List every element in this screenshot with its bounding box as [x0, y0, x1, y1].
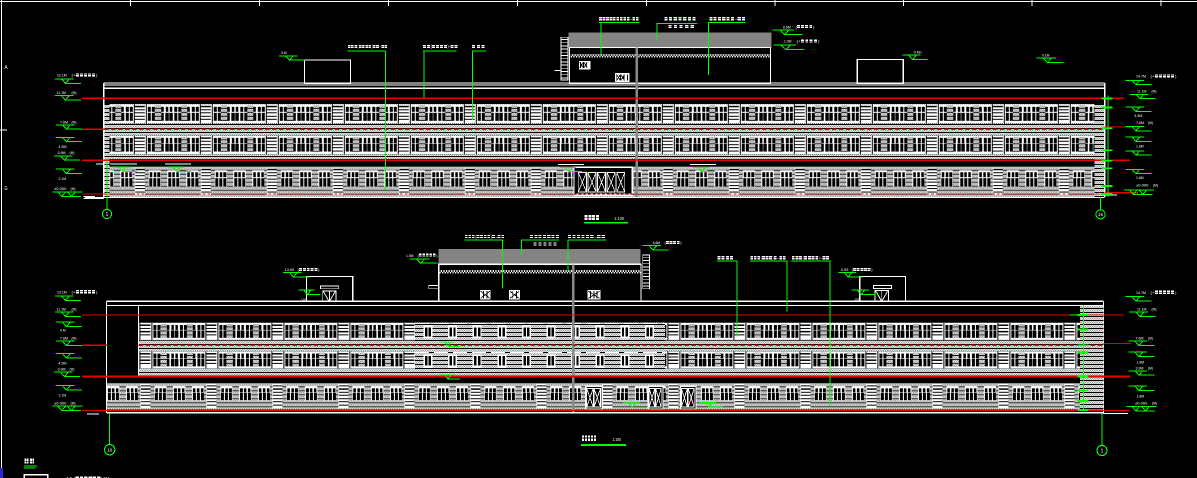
svg-text:3.95: 3.95	[841, 267, 849, 272]
svg-text:±0.000: ±0.000	[54, 400, 67, 405]
svg-text:1.5M: 1.5M	[406, 253, 413, 258]
svg-text:6.6M: 6.6M	[653, 240, 661, 245]
svg-text:(+: (+	[1151, 74, 1156, 79]
svg-text:(M): (M)	[1148, 120, 1154, 125]
svg-text:4.5M: 4.5M	[59, 360, 67, 365]
svg-text:(+: (+	[72, 289, 77, 294]
svg-text:(M): (M)	[1152, 307, 1158, 312]
svg-text:U.M: U.M	[855, 296, 861, 301]
svg-text:7.6M: 7.6M	[1136, 120, 1144, 125]
svg-text:13.95: 13.95	[285, 267, 295, 272]
svg-text:±0.000: ±0.000	[1136, 183, 1149, 188]
svg-text:3.9M: 3.9M	[1136, 365, 1144, 370]
svg-text:(M): (M)	[1148, 335, 1154, 340]
svg-text:14.7M: 14.7M	[1136, 74, 1146, 79]
svg-text:(M): (M)	[72, 119, 78, 124]
svg-text:11.1M: 11.1M	[1137, 89, 1146, 94]
svg-text:(M): (M)	[72, 306, 78, 311]
svg-text:4.M: 4.M	[60, 327, 66, 332]
svg-text:±0.000: ±0.000	[54, 186, 67, 191]
svg-text:(M): (M)	[72, 90, 78, 95]
svg-text:(M): (M)	[1153, 183, 1159, 188]
svg-text:2.1M: 2.1M	[59, 176, 67, 181]
svg-text:(+: (+	[1151, 290, 1156, 295]
svg-text:9.1M: 9.1M	[1042, 52, 1049, 57]
svg-text:A: A	[5, 65, 8, 71]
svg-text:1: 1	[106, 212, 109, 218]
svg-text:9.Mn: 9.Mn	[914, 49, 922, 54]
svg-text:12.1M: 12.1M	[57, 73, 67, 78]
svg-text:13.1M: 13.1M	[57, 289, 67, 294]
svg-text:16: 16	[1098, 212, 1103, 217]
svg-text:(M): (M)	[72, 336, 78, 341]
svg-text:(M): (M)	[71, 400, 77, 405]
svg-text:1: 1	[1101, 448, 1104, 454]
svg-text:9.M: 9.M	[281, 50, 287, 55]
svg-text:(M): (M)	[71, 186, 77, 191]
svg-text:2.1M: 2.1M	[59, 392, 67, 397]
svg-text:7.6M: 7.6M	[1136, 335, 1144, 340]
svg-text:7.6M: 7.6M	[60, 119, 68, 124]
svg-text:(M): (M)	[70, 366, 76, 371]
svg-text:7.6M: 7.6M	[60, 336, 68, 341]
svg-text:16: 16	[107, 447, 113, 452]
svg-text:1.0M: 1.0M	[784, 39, 791, 44]
svg-text:3.9M: 3.9M	[58, 150, 66, 155]
svg-text:(M): (M)	[1152, 401, 1158, 406]
svg-text:3.9M: 3.9M	[58, 366, 66, 371]
svg-text:G: G	[5, 186, 8, 192]
svg-text:14.7M: 14.7M	[1136, 290, 1146, 295]
svg-text:11.1M: 11.1M	[57, 306, 66, 311]
svg-text:U.M: U.M	[302, 296, 308, 301]
svg-text:1:100: 1:100	[615, 216, 625, 221]
svg-text:11.1M: 11.1M	[57, 90, 66, 95]
svg-text:)—: )—	[819, 255, 823, 260]
svg-text:1.8M: 1.8M	[1137, 393, 1145, 398]
svg-text:6.6M: 6.6M	[783, 24, 791, 29]
svg-text:1.8M: 1.8M	[1136, 175, 1144, 180]
svg-text:(M): (M)	[1152, 89, 1158, 94]
svg-text:1.8M: 1.8M	[1137, 360, 1145, 365]
svg-text:(+: (+	[72, 73, 77, 78]
svg-text:±0.000: ±0.000	[1135, 401, 1148, 406]
svg-text:4.5M: 4.5M	[1134, 113, 1142, 118]
svg-text:1.8M: 1.8M	[1136, 144, 1144, 149]
svg-text:(M): (M)	[1148, 365, 1154, 370]
svg-text:1:100: 1:100	[613, 437, 622, 442]
svg-text:11.1M: 11.1M	[1137, 307, 1146, 312]
svg-text:(M): (M)	[70, 150, 76, 155]
svg-text:4.5M: 4.5M	[59, 144, 67, 149]
